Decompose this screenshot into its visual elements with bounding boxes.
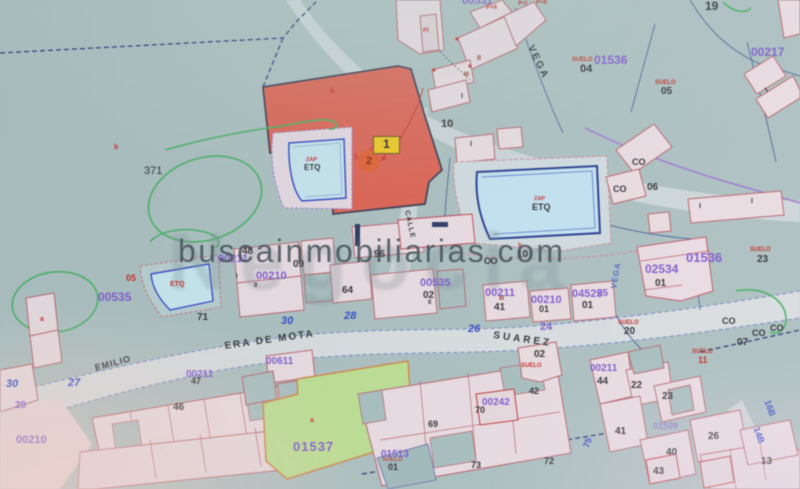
map-label: CO: [752, 329, 766, 338]
map-label: 43: [653, 467, 664, 477]
map-label: 40: [666, 448, 677, 458]
map-label: 28: [344, 311, 356, 322]
map-label: 26: [708, 432, 719, 442]
parcel-1-marker: 1: [373, 136, 400, 154]
map-label: 14B: [752, 426, 766, 445]
map-label: 73: [471, 461, 481, 470]
map-label: 30: [6, 379, 18, 390]
map-label: SUAREZ: [493, 331, 553, 349]
map-label: 70: [475, 406, 485, 415]
map-label: 00211: [590, 364, 617, 374]
map-label: EMILIO: [94, 354, 132, 372]
map-label: 44: [597, 377, 608, 387]
map-label: 00535: [98, 291, 131, 303]
map-label: VEGA: [525, 44, 550, 81]
map-label: 01509: [653, 422, 678, 431]
map-label: 07: [737, 338, 748, 348]
map-label: b: [114, 144, 118, 151]
map-label: 00535: [420, 278, 451, 289]
map-label: 00242: [482, 398, 510, 408]
map-label: 23: [757, 255, 768, 265]
map-label: 23: [662, 392, 673, 402]
map-label: 00217: [751, 46, 784, 58]
map-label: P+II: [486, 5, 497, 11]
map-label: 05: [126, 274, 136, 283]
map-label: a: [40, 316, 44, 323]
map-label: P+II: [536, 0, 547, 6]
map-label: 24: [540, 322, 552, 333]
map-label: SUELO: [750, 247, 771, 253]
map-label: I: [461, 93, 463, 100]
map-label: 10: [441, 119, 453, 130]
map-label: 71: [197, 313, 208, 323]
map-label: 75: [582, 437, 594, 449]
map-label: 30: [281, 316, 293, 327]
map-label: 00210: [256, 271, 287, 282]
map-label: 01: [539, 305, 549, 314]
map-label: 41: [615, 427, 626, 437]
map-label: 72: [544, 457, 554, 466]
map-label: 47: [191, 377, 201, 386]
map-label: VEGA: [610, 262, 623, 290]
map-label: 04: [580, 64, 592, 75]
map-label: 42: [529, 387, 539, 396]
map-label: 01: [655, 279, 666, 289]
map-label: 02: [534, 350, 545, 360]
map-label: III: [499, 296, 504, 302]
map-label: 46: [173, 403, 184, 413]
map-label: 13: [761, 457, 772, 467]
map-label: b: [330, 88, 334, 95]
map-label: PI: [423, 28, 429, 34]
map-label: a: [382, 155, 386, 162]
cadastral-map-screenshot: Negocia ERA DE MOTASUAREZEMILIOVEGACALLE…: [0, 0, 800, 489]
map-label: II: [428, 300, 431, 306]
map-label: I: [764, 87, 770, 94]
map-label: 06: [647, 183, 658, 193]
watermark-url: buscainmobiliarias.com: [178, 233, 566, 270]
map-label: 29: [15, 401, 26, 411]
map-label: III: [464, 72, 469, 78]
map-label: ETQ: [170, 281, 184, 288]
map-label: 371: [144, 166, 162, 177]
map-label: P+I: [518, 1, 527, 7]
map-label: 69: [428, 420, 438, 429]
map-label: I: [751, 198, 753, 205]
map-label: 19: [705, 0, 718, 12]
map-photo: Negocia ERA DE MOTASUAREZEMILIOVEGACALLE…: [0, 0, 800, 489]
map-label: 41: [494, 303, 505, 313]
map-label: SUELO: [521, 363, 542, 369]
map-label: 64: [342, 286, 353, 296]
map-label: 05: [661, 87, 672, 97]
map-label: a: [310, 417, 314, 424]
map-label: 16B: [763, 399, 777, 418]
map-label: 11: [698, 356, 708, 365]
map-label: 01536: [686, 251, 722, 264]
map-label: 01536: [594, 54, 627, 66]
map-label: 22: [631, 381, 642, 391]
map-label: 01: [582, 301, 593, 311]
map-label: 00611: [266, 357, 293, 367]
map-label: CO: [770, 324, 784, 333]
map-label: 25: [597, 289, 608, 299]
map-label: I: [470, 141, 472, 148]
map-label: ETQ: [532, 203, 551, 212]
map-label: 27: [68, 378, 80, 389]
map-label: II: [254, 283, 257, 289]
map-label: ETQ: [304, 164, 320, 172]
map-label: 02534: [645, 263, 678, 275]
map-label: I: [699, 203, 701, 210]
map-label: CO: [722, 317, 736, 326]
map-label: 01: [388, 463, 398, 472]
map-label: CO: [613, 185, 627, 194]
map-label: 00210: [16, 435, 47, 446]
map-label: II: [477, 55, 481, 62]
map-label: 26: [468, 324, 480, 335]
map-label: 01537: [293, 440, 334, 453]
map-label: 20: [624, 327, 635, 337]
map-label: ERA DE MOTA: [224, 329, 315, 352]
map-label: CO: [632, 158, 646, 167]
map-label: I: [236, 274, 238, 280]
